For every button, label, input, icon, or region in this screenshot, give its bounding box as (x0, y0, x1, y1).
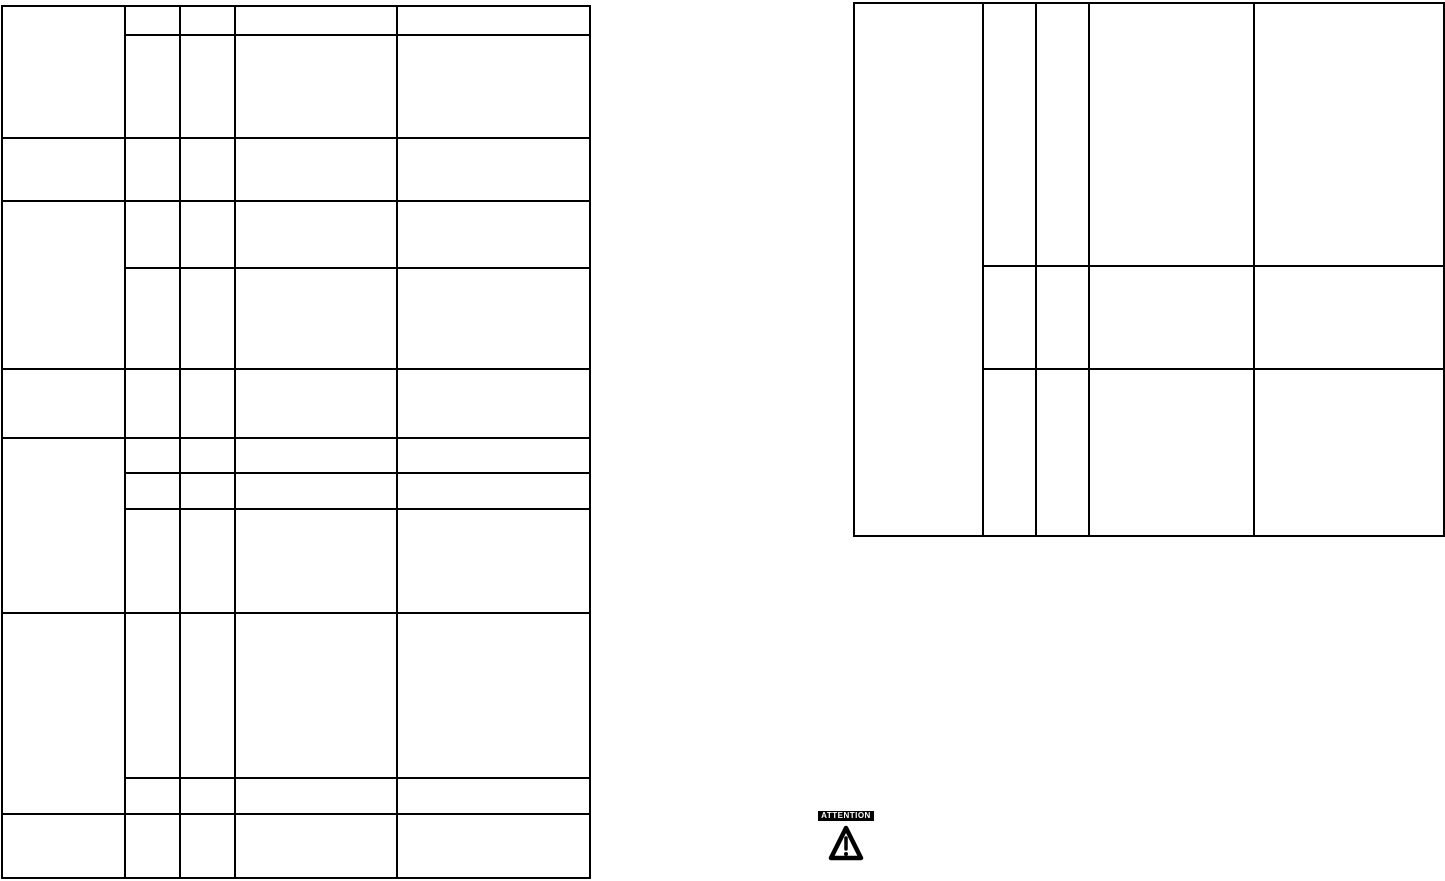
table-row (2, 438, 590, 473)
table-cell (397, 438, 590, 473)
table-cell (125, 201, 180, 268)
table-cell (397, 473, 590, 509)
right-table (853, 2, 1445, 537)
warning-triangle-icon (828, 824, 864, 862)
table-cell (125, 814, 180, 878)
table-cell (1254, 369, 1444, 536)
table-row (854, 3, 1444, 266)
table-cell (125, 6, 180, 35)
table-cell (235, 6, 397, 35)
table-cell (180, 268, 235, 369)
table-cell (235, 138, 397, 201)
table-cell (180, 613, 235, 778)
table-cell (2, 6, 125, 138)
table-row (2, 138, 590, 201)
table-cell (397, 509, 590, 613)
table-cell (1254, 266, 1444, 369)
table-cell (397, 201, 590, 268)
table-cell (180, 473, 235, 509)
table-cell (2, 814, 125, 878)
table-cell (180, 509, 235, 613)
table-cell (1089, 266, 1254, 369)
table-row (2, 6, 590, 35)
table-cell (2, 201, 125, 369)
table-cell (397, 138, 590, 201)
table-cell (1089, 3, 1254, 266)
table-cell (1036, 369, 1089, 536)
table-row (2, 814, 590, 878)
table-cell (2, 138, 125, 201)
table-cell (1089, 369, 1254, 536)
table-cell (1254, 3, 1444, 266)
table-row (2, 201, 590, 268)
table-row (2, 369, 590, 438)
table-cell (1036, 3, 1089, 266)
table-row (2, 613, 590, 778)
table-cell (180, 369, 235, 438)
table-cell (397, 814, 590, 878)
table-cell (235, 35, 397, 138)
table-cell (125, 138, 180, 201)
table-cell (125, 613, 180, 778)
table-cell (180, 138, 235, 201)
table-cell (125, 35, 180, 138)
table-cell (235, 814, 397, 878)
table-cell (983, 266, 1036, 369)
table-cell (180, 438, 235, 473)
table-cell (235, 613, 397, 778)
table-cell (180, 35, 235, 138)
table-cell (983, 369, 1036, 536)
table-cell (1036, 266, 1089, 369)
table-cell (397, 778, 590, 814)
table-cell (235, 473, 397, 509)
attention-badge: ATTENTION (818, 811, 874, 821)
table-cell (125, 778, 180, 814)
table-cell (180, 778, 235, 814)
table-cell (854, 3, 983, 536)
table-cell (397, 613, 590, 778)
table-cell (397, 369, 590, 438)
table-cell (2, 613, 125, 814)
table-cell (180, 201, 235, 268)
page-sheet: ATTENTION (0, 0, 1445, 881)
table-cell (125, 369, 180, 438)
table-cell (397, 6, 590, 35)
table-cell (235, 778, 397, 814)
table-cell (397, 268, 590, 369)
table-cell (235, 509, 397, 613)
table-cell (397, 35, 590, 138)
table-cell (235, 201, 397, 268)
table-cell (180, 814, 235, 878)
table-cell (2, 438, 125, 613)
table-cell (235, 438, 397, 473)
table-cell (125, 509, 180, 613)
table-cell (2, 369, 125, 438)
table-cell (125, 438, 180, 473)
attention-mark: ATTENTION (818, 805, 874, 862)
table-cell (983, 3, 1036, 266)
document-page: { "page": { "background_color": "#ffffff… (0, 0, 1445, 881)
table-cell (235, 268, 397, 369)
left-table (1, 5, 591, 879)
table-cell (180, 6, 235, 35)
table-cell (125, 268, 180, 369)
table-cell (125, 473, 180, 509)
table-cell (235, 369, 397, 438)
